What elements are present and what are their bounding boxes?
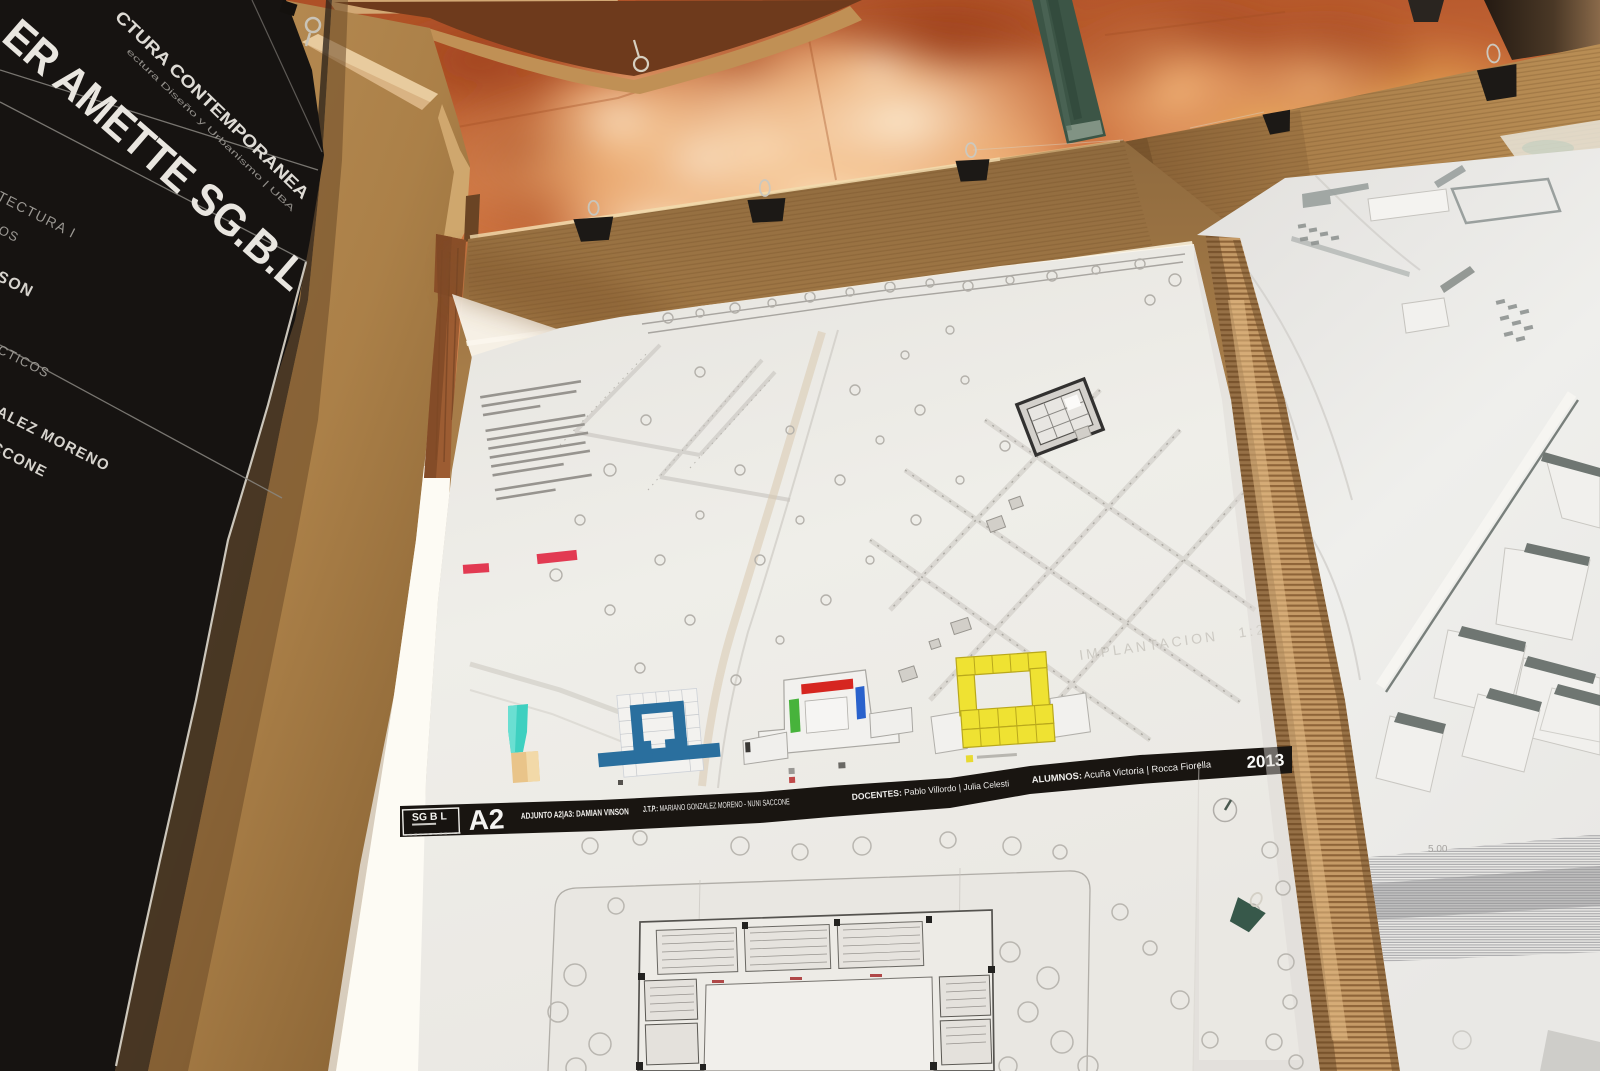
svg-text:SG B L: SG B L	[412, 810, 448, 823]
svg-text:A2: A2	[468, 803, 505, 836]
svg-text:5.00: 5.00	[1428, 844, 1448, 855]
